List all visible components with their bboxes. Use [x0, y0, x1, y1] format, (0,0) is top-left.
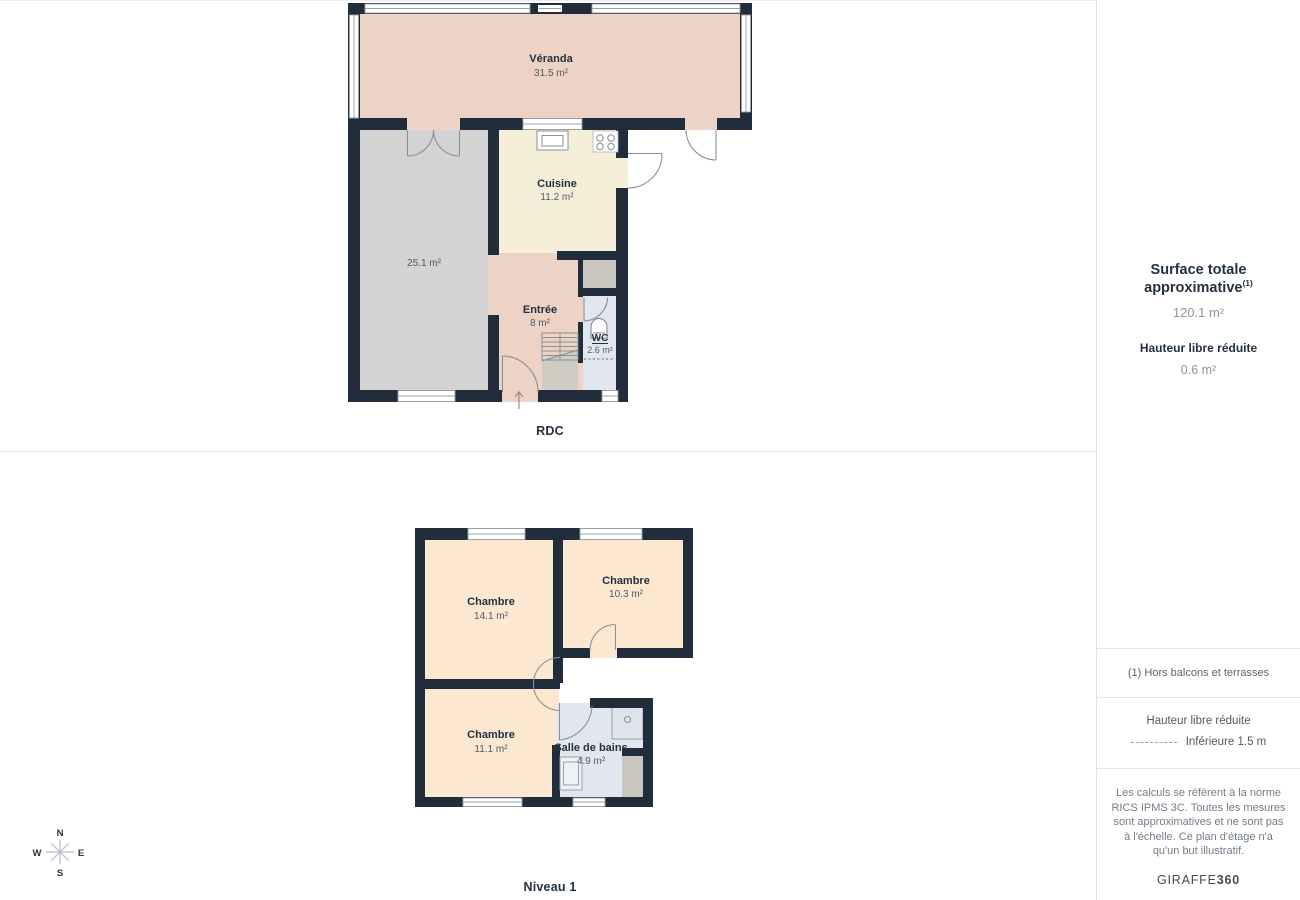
reduced-height-value: 0.6 m² — [1097, 363, 1300, 377]
chambre-b-label: Chambre — [602, 575, 650, 587]
brand-normal: GIRAFFE — [1157, 873, 1217, 887]
legend-value: Inférieure 1.5 m — [1186, 736, 1267, 748]
compass-west: W — [33, 848, 42, 859]
floor-plan-page: Véranda 31.5 m² Cuisine 11.2 m² 25.1 m² … — [0, 0, 1300, 900]
cuisine-label: Cuisine — [537, 178, 577, 190]
compass-south: S — [57, 868, 63, 879]
niveau1-floor-label: Niveau 1 — [400, 880, 700, 894]
wc-area: 2.6 m² — [587, 345, 613, 355]
compass-rose: N W E S — [20, 818, 100, 886]
doorway-cuisine-ext — [616, 158, 628, 188]
veranda-area: 31.5 m² — [534, 68, 569, 79]
niveau1-floor-plan: Chambre 14.1 m² Chambre 10.3 m² Chambre … — [400, 520, 700, 810]
summary-sidebar: Surface totale approximative(1) 120.1 m²… — [1096, 0, 1300, 900]
doorway-wc — [578, 297, 583, 322]
reduced-height-title: Hauteur libre réduite — [1097, 341, 1300, 355]
surface-summary: Surface totale approximative(1) 120.1 m²… — [1097, 262, 1300, 377]
bathroom-closet — [622, 756, 646, 799]
compass-east: E — [78, 848, 84, 859]
chambre-a-area: 14.1 m² — [474, 611, 509, 622]
dashed-line-icon — [1131, 742, 1177, 743]
closet — [581, 258, 616, 289]
giraffe360-logo: GIRAFFE360 — [1097, 873, 1300, 887]
legend-section: Hauteur libre réduite Inférieure 1.5 m — [1097, 698, 1300, 768]
salle-de-bains-area: 4.9 m² — [577, 756, 606, 767]
surface-total-title: Surface totale approximative(1) — [1097, 262, 1300, 296]
rdc-floor-plan: Véranda 31.5 m² Cuisine 11.2 m² 25.1 m² … — [345, 0, 755, 445]
rdc-floor-label: RDC — [345, 424, 755, 438]
doorway-chambre-b — [590, 648, 617, 658]
entree-area: 8 m² — [530, 318, 551, 329]
disclaimer-text: Les calculs se réfèrent à la norme RICS … — [1111, 786, 1287, 859]
footnote-marker: (1) — [1242, 278, 1252, 288]
doorway-veranda-ext — [685, 118, 717, 130]
footnote-text: (1) Hors balcons et terrasses — [1097, 648, 1300, 698]
salle-de-bains-label: Salle de bains — [554, 742, 627, 754]
entree-label: Entrée — [523, 304, 557, 316]
compass-north: N — [57, 828, 64, 839]
chambre-a-label: Chambre — [467, 596, 515, 608]
doorway-front — [502, 390, 538, 402]
chambre-c-area: 11.1 m² — [474, 744, 508, 755]
stove-icon — [593, 131, 618, 152]
veranda-label: Véranda — [529, 53, 573, 65]
wc-label: WC — [592, 333, 609, 344]
living-area: 25.1 m² — [407, 258, 442, 269]
disclaimer-section: Les calculs se réfèrent à la norme RICS … — [1097, 768, 1300, 887]
floor-divider — [0, 451, 1097, 452]
room-chambre-c — [423, 685, 559, 799]
legend-title: Hauteur libre réduite — [1097, 715, 1300, 727]
surface-total-value: 120.1 m² — [1097, 305, 1300, 320]
chambre-b-area: 10.3 m² — [609, 589, 644, 600]
room-veranda — [352, 8, 748, 123]
brand-bold: 360 — [1217, 873, 1240, 887]
cuisine-area: 11.2 m² — [540, 192, 574, 203]
doorway-veranda-living — [407, 118, 460, 130]
compass-star-icon — [46, 840, 74, 864]
kitchen-sink-icon — [537, 131, 568, 150]
chambre-c-label: Chambre — [467, 729, 515, 741]
